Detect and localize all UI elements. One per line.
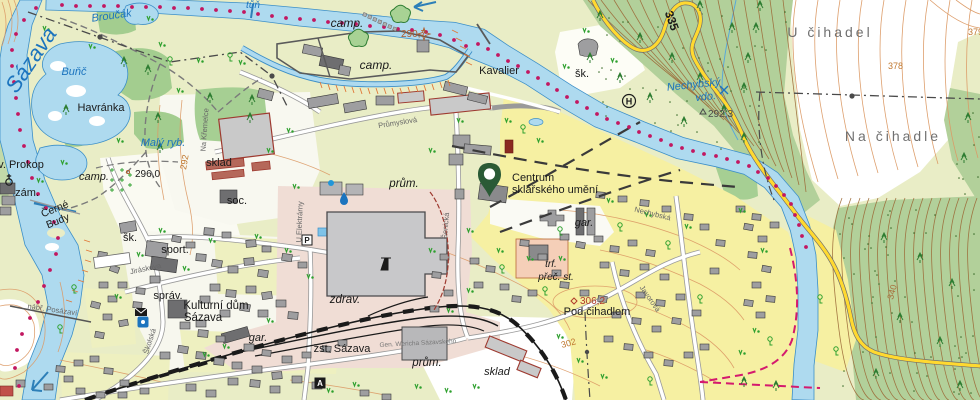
svg-text:trf.: trf. — [545, 259, 557, 270]
svg-text:camp.: camp. — [360, 58, 393, 72]
svg-text:prům.: prům. — [411, 357, 441, 369]
svg-text:sklad: sklad — [206, 157, 232, 169]
svg-text:prům.: prům. — [388, 178, 418, 190]
svg-text:Centrum: Centrum — [512, 172, 554, 184]
svg-text:U čihadel: U čihadel — [787, 24, 872, 40]
svg-text:Pod čihadlem: Pod čihadlem — [564, 306, 631, 318]
svg-text:camp.: camp. — [79, 171, 109, 183]
svg-text:šk.: šk. — [575, 68, 589, 80]
svg-text:378: 378 — [888, 61, 903, 71]
svg-text:sklad: sklad — [484, 366, 511, 378]
svg-text:sklářského umění: sklářského umění — [512, 184, 598, 196]
svg-text:292,3: 292,3 — [708, 109, 733, 120]
svg-text:v. Prokop: v. Prokop — [0, 159, 44, 171]
svg-text:gar.: gar. — [575, 217, 594, 229]
svg-text:Malý ryb.: Malý ryb. — [141, 137, 186, 149]
svg-text:přeč. st.: přeč. st. — [537, 272, 574, 283]
svg-text:zám.: zám. — [15, 187, 39, 199]
svg-text:tůň: tůň — [246, 0, 260, 11]
svg-text:Havránka: Havránka — [77, 102, 125, 114]
svg-text:camp.: camp. — [331, 16, 364, 30]
svg-text:Kulturní dům: Kulturní dům — [183, 300, 248, 312]
svg-text:zdrav.: zdrav. — [329, 294, 360, 306]
svg-text:vdo.: vdo. — [695, 90, 717, 104]
svg-text:sport.: sport. — [161, 244, 189, 256]
svg-text:soc.: soc. — [227, 195, 247, 207]
svg-text:gar.: gar. — [249, 332, 268, 344]
svg-text:H: H — [626, 96, 633, 106]
svg-text:290,7: 290,7 — [401, 29, 426, 40]
svg-text:šk.: šk. — [123, 232, 137, 244]
svg-text:A: A — [317, 379, 323, 388]
svg-text:Kavalier: Kavalier — [479, 65, 519, 77]
svg-text:306,2: 306,2 — [580, 296, 605, 307]
svg-text:Na čihadle: Na čihadle — [845, 128, 941, 144]
svg-text:správ.: správ. — [153, 290, 182, 302]
svg-text:Sázava: Sázava — [184, 312, 223, 324]
svg-text:296,0: 296,0 — [135, 169, 160, 180]
svg-text:žst. Sázava: žst. Sázava — [314, 343, 372, 355]
svg-text:Buňč: Buňč — [61, 66, 87, 78]
svg-text:U Elektrárny: U Elektrárny — [294, 201, 304, 243]
svg-text:P: P — [304, 236, 310, 245]
svg-text:379: 379 — [968, 27, 980, 37]
